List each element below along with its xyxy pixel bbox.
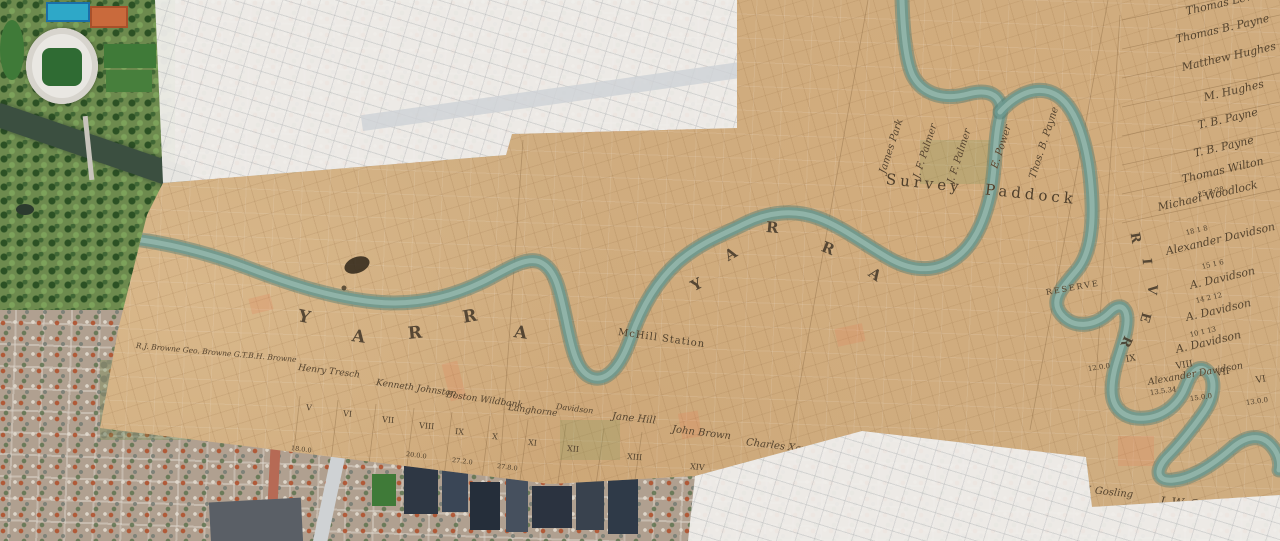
- orange-roof-building: [90, 6, 128, 28]
- river-name-letter: A: [513, 324, 528, 343]
- city-building: [404, 462, 438, 514]
- city-building: [532, 486, 572, 528]
- stadium-pitch: [42, 48, 82, 86]
- river-name-letter: R: [765, 220, 779, 236]
- stadium: [26, 28, 98, 104]
- river-name-letter: R: [407, 325, 423, 343]
- oval-field-west: [0, 20, 24, 80]
- river-name-letter: A: [351, 328, 366, 347]
- allotment-numeral: VII: [382, 416, 395, 425]
- city-building: [576, 478, 604, 530]
- allotment-numeral: VI: [1255, 375, 1266, 386]
- green-field-bottom: [372, 474, 396, 506]
- rail-yard: [209, 498, 303, 541]
- pond: [16, 204, 34, 215]
- allotment-numeral: XII: [567, 445, 580, 454]
- allotment-numeral: XIII: [627, 453, 643, 462]
- river-name-letter: R: [1128, 231, 1143, 244]
- tennis-courts: [46, 2, 90, 22]
- map-viewer-canvas[interactable]: Survey Paddock RESERVE McHill Station Y …: [0, 0, 1280, 541]
- sports-field-2: [106, 70, 152, 92]
- ink-blot: [342, 253, 372, 277]
- allotment-numeral: XI: [528, 439, 538, 448]
- allotment-numeral: IX: [1125, 354, 1136, 365]
- allotment-numeral: XIV: [690, 463, 705, 472]
- allotment-numeral: IX: [455, 428, 465, 437]
- city-building: [442, 470, 468, 512]
- faded-highway: [361, 61, 749, 131]
- highway: [312, 452, 345, 541]
- allotment-numeral: VI: [343, 410, 353, 419]
- allotment-numeral: V: [306, 404, 312, 412]
- allotment-numeral: X: [492, 433, 498, 441]
- allotment-numeral: VIII: [419, 422, 435, 431]
- city-building: [470, 482, 500, 530]
- sports-field-1: [104, 44, 156, 68]
- river-name-letter: R: [462, 308, 479, 327]
- river-name-letter: I: [1140, 258, 1153, 265]
- river-name-letter: V: [1145, 284, 1159, 295]
